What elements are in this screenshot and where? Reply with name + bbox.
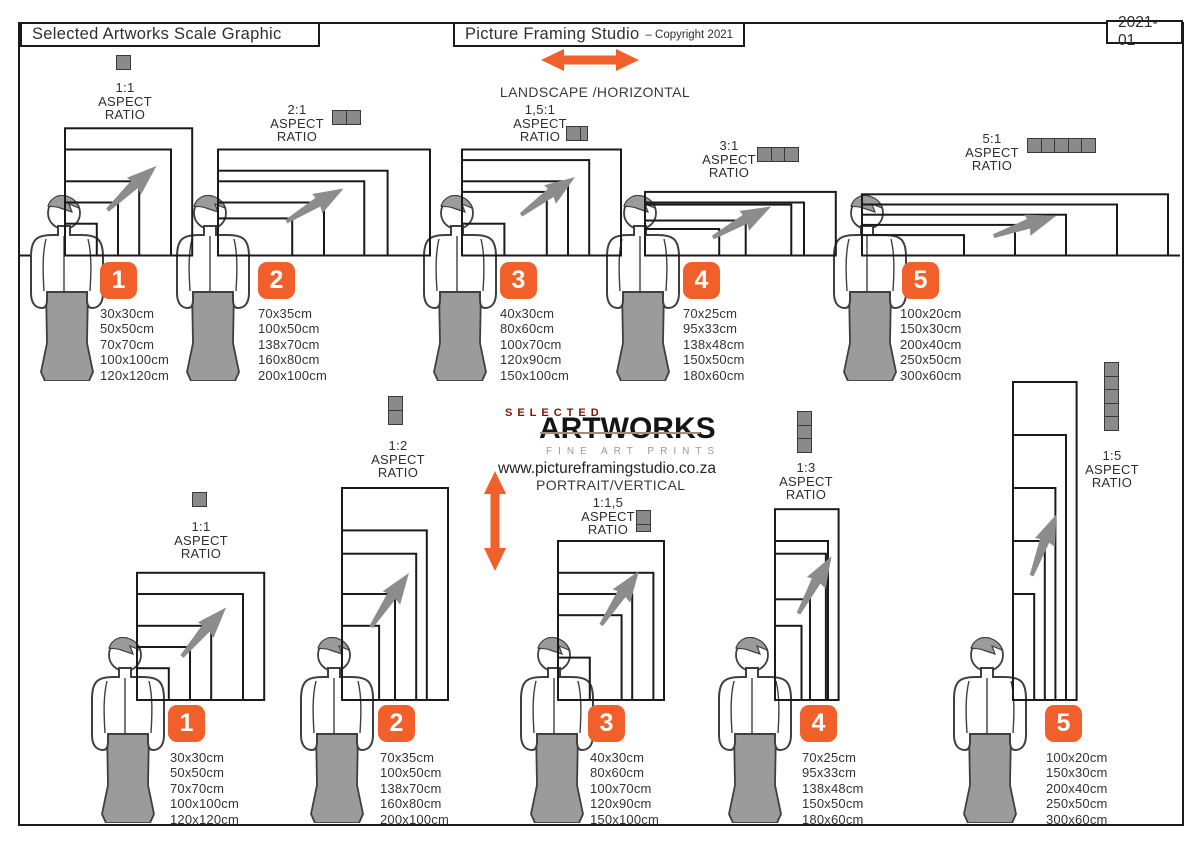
aspect-word: ASPECT (751, 475, 861, 489)
size-item: 100x50cm (258, 321, 327, 336)
title-box: Selected Artworks Scale Graphic (20, 22, 320, 47)
ratio-word: RATIO (146, 547, 256, 561)
ratio-icon-cell (636, 524, 651, 532)
group-number-badge: 3 (588, 705, 625, 742)
aspect-ratio-label: 1:2ASPECTRATIO (343, 439, 453, 480)
size-item: 138x70cm (258, 337, 327, 352)
size-item: 120x90cm (500, 352, 569, 367)
ratio-icon-cell (116, 55, 131, 70)
size-item: 30x30cm (170, 750, 239, 765)
person-figure (954, 637, 1026, 823)
horizontal-double-arrow-icon (540, 46, 640, 79)
group-number-badge: 3 (500, 262, 537, 299)
ratio-icon-cell (388, 410, 403, 425)
group-number-badge: 5 (902, 262, 939, 299)
size-item: 138x70cm (380, 781, 449, 796)
person-figure (177, 195, 249, 381)
size-item: 70x25cm (802, 750, 864, 765)
aspect-ratio-icon-1-2 (388, 396, 403, 425)
size-list: 70x25cm95x33cm138x48cm150x50cm180x60cm (683, 306, 745, 383)
scale-arrow-icon (281, 179, 349, 231)
aspect-ratio-icon-1-1 (116, 55, 131, 70)
group-number-badge: 2 (258, 262, 295, 299)
size-item: 70x70cm (170, 781, 239, 796)
aspect-word: ASPECT (146, 534, 256, 548)
size-item: 80x60cm (590, 765, 659, 780)
size-item: 40x30cm (500, 306, 569, 321)
size-item: 95x33cm (802, 765, 864, 780)
ratio-icon-cell (192, 492, 207, 507)
copyright-text: – Copyright 2021 (645, 29, 733, 41)
size-item: 150x30cm (900, 321, 962, 336)
size-item: 100x20cm (1046, 750, 1108, 765)
ratio-word: RATIO (937, 159, 1047, 173)
size-item: 120x120cm (100, 368, 169, 383)
size-item: 100x20cm (900, 306, 962, 321)
aspect-ratio-icon-1-3 (797, 411, 812, 453)
ratio-word: RATIO (674, 166, 784, 180)
aspect-ratio-icon-1-1-5 (636, 510, 651, 532)
sheet-code: 2021-01 (1118, 14, 1171, 50)
aspect-word: ASPECT (70, 95, 180, 109)
landscape-label: LANDSCAPE /HORIZONTAL (500, 84, 690, 100)
size-item: 100x50cm (380, 765, 449, 780)
size-item: 70x70cm (100, 337, 169, 352)
aspect-ratio-label: 1:1ASPECTRATIO (146, 520, 256, 561)
size-item: 150x50cm (683, 352, 745, 367)
group-number-badge: 4 (800, 705, 837, 742)
person-figure (301, 637, 373, 823)
size-item: 138x48cm (683, 337, 745, 352)
size-list: 40x30cm80x60cm100x70cm120x90cm150x100cm (590, 750, 659, 827)
person-figure (834, 195, 906, 381)
ratio-word: RATIO (70, 108, 180, 122)
aspect-ratio-value: 1:1 (70, 81, 180, 95)
size-item: 70x25cm (683, 306, 745, 321)
size-item: 150x100cm (500, 368, 569, 383)
size-item: 138x48cm (802, 781, 864, 796)
aspect-ratio-icon-1-1 (192, 492, 207, 507)
person-figure (607, 195, 679, 381)
ratio-icon-cell (1104, 416, 1119, 431)
aspect-ratio-value: 1:1 (146, 520, 256, 534)
size-item: 300x60cm (1046, 812, 1108, 827)
ratio-icon-cell (1081, 138, 1096, 153)
logo-subtitle-text: FINE ART PRINTS (546, 446, 720, 457)
vertical-double-arrow-icon (481, 470, 509, 577)
aspect-ratio-value: 1:1,5 (553, 496, 663, 510)
size-item: 30x30cm (100, 306, 169, 321)
group-number-badge: 5 (1045, 705, 1082, 742)
ratio-word: RATIO (751, 488, 861, 502)
size-item: 180x60cm (683, 368, 745, 383)
size-item: 150x30cm (1046, 765, 1108, 780)
size-list: 70x25cm95x33cm138x48cm150x50cm180x60cm (802, 750, 864, 827)
ratio-icon-cell (346, 110, 361, 125)
aspect-ratio-label: 1:5ASPECTRATIO (1057, 449, 1167, 490)
aspect-ratio-label: 1:1ASPECTRATIO (70, 81, 180, 122)
size-item: 200x100cm (380, 812, 449, 827)
size-item: 50x50cm (170, 765, 239, 780)
group-number-badge: 1 (100, 262, 137, 299)
aspect-ratio-icon-5-1 (1027, 138, 1096, 153)
scale-arrow-icon (515, 168, 582, 224)
ratio-word: RATIO (1057, 476, 1167, 490)
size-item: 40x30cm (590, 750, 659, 765)
ratio-word: RATIO (343, 466, 453, 480)
size-item: 50x50cm (100, 321, 169, 336)
size-list: 70x35cm100x50cm138x70cm160x80cm200x100cm (380, 750, 449, 827)
size-item: 160x80cm (380, 796, 449, 811)
scale-graphic-page: Selected Artworks Scale Graphic Picture … (0, 0, 1200, 842)
size-item: 250x50cm (1046, 796, 1108, 811)
sheet-code-box: 2021-01 (1106, 20, 1183, 44)
size-item: 200x40cm (1046, 781, 1108, 796)
size-item: 300x60cm (900, 368, 962, 383)
scale-arrow-icon (362, 567, 418, 634)
size-item: 80x60cm (500, 321, 569, 336)
scale-arrow-icon (789, 551, 841, 619)
ratio-icon-cell (580, 126, 588, 141)
group-number-badge: 2 (378, 705, 415, 742)
size-item: 100x100cm (170, 796, 239, 811)
aspect-ratio-value: 1,5:1 (485, 103, 595, 117)
scale-arrow-icon (174, 600, 235, 664)
website-url: www.pictureframingstudio.co.za (498, 460, 716, 478)
ratio-word: RATIO (242, 130, 352, 144)
ratio-icon-cell (797, 438, 812, 453)
size-item: 120x120cm (170, 812, 239, 827)
size-item: 100x70cm (590, 781, 659, 796)
aspect-ratio-icon-2-1 (332, 110, 361, 125)
size-list: 100x20cm150x30cm200x40cm250x50cm300x60cm (900, 306, 962, 383)
size-item: 120x90cm (590, 796, 659, 811)
aspect-ratio-icon-1-5-1 (566, 126, 588, 141)
page-title: Selected Artworks Scale Graphic (32, 25, 282, 44)
size-item: 70x35cm (380, 750, 449, 765)
aspect-ratio-icon-1-5 (1104, 362, 1119, 431)
aspect-ratio-value: 1:5 (1057, 449, 1167, 463)
person-figure (92, 637, 164, 823)
size-list: 30x30cm50x50cm70x70cm100x100cm120x120cm (170, 750, 239, 827)
size-item: 100x100cm (100, 352, 169, 367)
studio-title: Picture Framing Studio (465, 25, 639, 44)
size-item: 200x100cm (258, 368, 327, 383)
size-item: 200x40cm (900, 337, 962, 352)
group-number-badge: 1 (168, 705, 205, 742)
aspect-ratio-value: 1:3 (751, 461, 861, 475)
portrait-label: PORTRAIT/VERTICAL (536, 477, 685, 493)
aspect-word: ASPECT (1057, 463, 1167, 477)
aspect-word: ASPECT (343, 453, 453, 467)
size-item: 150x50cm (802, 796, 864, 811)
aspect-ratio-icon-3-1 (757, 147, 799, 162)
size-item: 70x35cm (258, 306, 327, 321)
size-item: 95x33cm (683, 321, 745, 336)
frame-rect-180x60 (775, 509, 839, 700)
aspect-ratio-value: 1:2 (343, 439, 453, 453)
frame-rect-160x80 (342, 530, 427, 700)
aspect-ratio-label: 1:3ASPECTRATIO (751, 461, 861, 502)
studio-title-box: Picture Framing Studio – Copyright 2021 (453, 22, 745, 47)
ratio-icon-cell (784, 147, 799, 162)
size-item: 180x60cm (802, 812, 864, 827)
logo-strike-line (540, 432, 700, 434)
frame-rect-150x30 (1013, 541, 1045, 700)
person-figure (719, 637, 791, 823)
logo-artworks-text: ARTWORKS (539, 412, 716, 446)
size-item: 150x100cm (590, 812, 659, 827)
scale-arrow-icon (592, 565, 648, 632)
size-list: 100x20cm150x30cm200x40cm250x50cm300x60cm (1046, 750, 1108, 827)
size-item: 160x80cm (258, 352, 327, 367)
size-item: 250x50cm (900, 352, 962, 367)
group-number-badge: 4 (683, 262, 720, 299)
size-list: 30x30cm50x50cm70x70cm100x100cm120x120cm (100, 306, 169, 383)
size-list: 70x35cm100x50cm138x70cm160x80cm200x100cm (258, 306, 327, 383)
size-list: 40x30cm80x60cm100x70cm120x90cm150x100cm (500, 306, 569, 383)
size-item: 100x70cm (500, 337, 569, 352)
scale-arrow-icon (990, 205, 1060, 246)
scale-arrow-icon (100, 158, 164, 219)
